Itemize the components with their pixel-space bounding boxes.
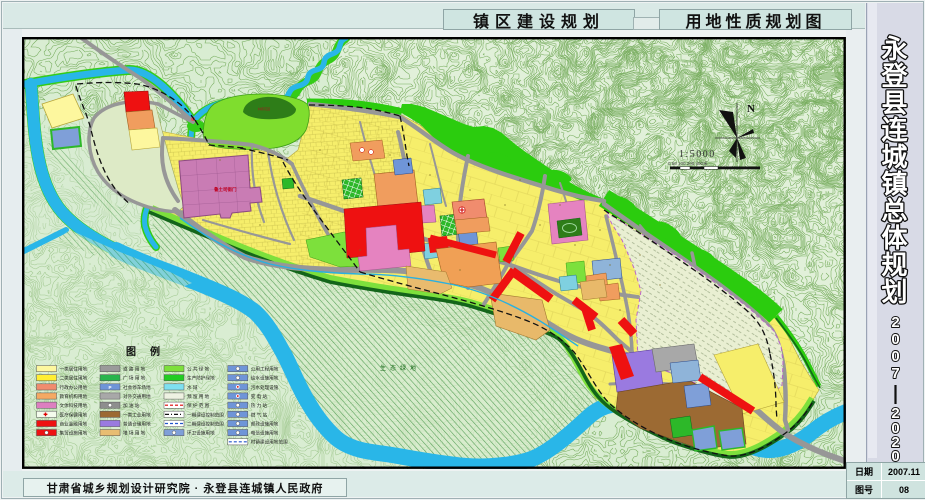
svg-text:水 域: 水 域 (187, 384, 198, 390)
svg-text:堆 场 用 地: 堆 场 用 地 (123, 430, 146, 437)
svg-text:7: 7 (891, 365, 899, 382)
svg-text:公用工程用地: 公用工程用地 (251, 366, 279, 373)
svg-text:生产防护绿地: 生产防护绿地 (187, 375, 215, 382)
svg-text:二类居住用地: 二类居住用地 (60, 375, 88, 382)
svg-text:登: 登 (880, 61, 908, 91)
svg-text:一类居住用地: 一类居住用地 (60, 366, 88, 373)
svg-text:体: 体 (881, 223, 908, 253)
svg-text:P: P (109, 385, 112, 390)
svg-text:行政办公用地: 行政办公用地 (60, 384, 88, 391)
svg-text:2: 2 (891, 314, 899, 331)
svg-text:公 共 绿 地: 公 共 绿 地 (187, 366, 210, 373)
svg-text:集贸设施用地: 集贸设施用地 (60, 430, 88, 437)
svg-text:鲁土司衙门: 鲁土司衙门 (214, 186, 237, 193)
svg-text:医疗保健用地: 医疗保健用地 (60, 411, 88, 418)
svg-text:热 力 站: 热 力 站 (251, 402, 268, 409)
svg-text:电信设施用地: 电信设施用地 (251, 430, 279, 437)
svg-text:划: 划 (881, 277, 907, 307)
svg-text:县: 县 (881, 88, 907, 118)
svg-text:社会停车场地: 社会停车场地 (123, 384, 151, 391)
svg-text:广 场 用 地: 广 场 用 地 (123, 375, 146, 382)
svg-text:城: 城 (881, 142, 907, 172)
svg-text:文体科技用地: 文体科技用地 (60, 402, 88, 409)
svg-text:给水设施用地: 给水设施用地 (251, 375, 279, 382)
svg-text:对外交通用地: 对外交通用地 (123, 393, 151, 400)
svg-text:商业金融用地: 商业金融用地 (60, 420, 88, 427)
svg-text:污水处理设施: 污水处理设施 (251, 384, 279, 391)
svg-text:预 留 用 地: 预 留 用 地 (187, 393, 210, 400)
svg-text:1:5000: 1:5000 (679, 149, 716, 160)
svg-text:燃 气 站: 燃 气 站 (251, 411, 268, 418)
svg-text:图例: 图例 (126, 345, 174, 358)
svg-text:二期建设控制范围: 二期建设控制范围 (187, 420, 224, 427)
svg-text:连: 连 (881, 115, 908, 145)
svg-text:环卫设施用地: 环卫设施用地 (187, 430, 215, 437)
svg-text:保 护 范 围: 保 护 范 围 (187, 402, 210, 409)
svg-text:0: 0 (891, 331, 899, 348)
svg-text:镇: 镇 (881, 169, 907, 199)
svg-text:一类工业用地: 一类工业用地 (123, 411, 151, 418)
svg-text:0 50 100 200: 0 50 100 200 400米 (668, 160, 708, 167)
svg-text:N: N (747, 103, 755, 115)
svg-text:变 电 站: 变 电 站 (251, 393, 268, 400)
svg-text:村镇建设用地范围: 村镇建设用地范围 (251, 439, 288, 446)
svg-text:教育机构用地: 教育机构用地 (60, 393, 88, 400)
svg-text:生态绿地: 生态绿地 (380, 364, 420, 372)
svg-text:普通仓储用地: 普通仓储用地 (123, 420, 151, 427)
svg-text:邮政设施用地: 邮政设施用地 (251, 420, 279, 427)
svg-text:规: 规 (881, 250, 907, 280)
svg-text:林家花园: 林家花园 (258, 106, 270, 111)
svg-text:道 路 用 地: 道 路 用 地 (123, 366, 146, 373)
svg-text:永: 永 (881, 34, 907, 64)
svg-text:0: 0 (891, 348, 899, 365)
svg-text:一期建设控制范围: 一期建设控制范围 (187, 411, 224, 418)
svg-text:总: 总 (881, 196, 907, 226)
svg-text:加 油 站: 加 油 站 (123, 402, 140, 409)
